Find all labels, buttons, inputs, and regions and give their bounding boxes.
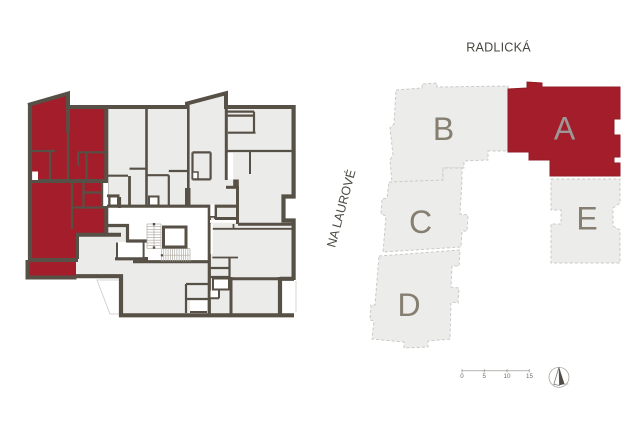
svg-text:5: 5 bbox=[482, 373, 486, 380]
svg-text:NA LAUROVÉ: NA LAUROVÉ bbox=[323, 168, 358, 249]
svg-text:RADLICKÁ: RADLICKÁ bbox=[466, 40, 531, 55]
svg-text:A: A bbox=[554, 111, 576, 147]
svg-text:10: 10 bbox=[504, 373, 511, 380]
svg-text:C: C bbox=[409, 204, 432, 240]
svg-text:15: 15 bbox=[526, 373, 533, 380]
svg-text:0: 0 bbox=[460, 373, 464, 380]
svg-text:E: E bbox=[576, 201, 597, 237]
svg-text:D: D bbox=[397, 287, 420, 323]
svg-text:B: B bbox=[433, 111, 454, 147]
